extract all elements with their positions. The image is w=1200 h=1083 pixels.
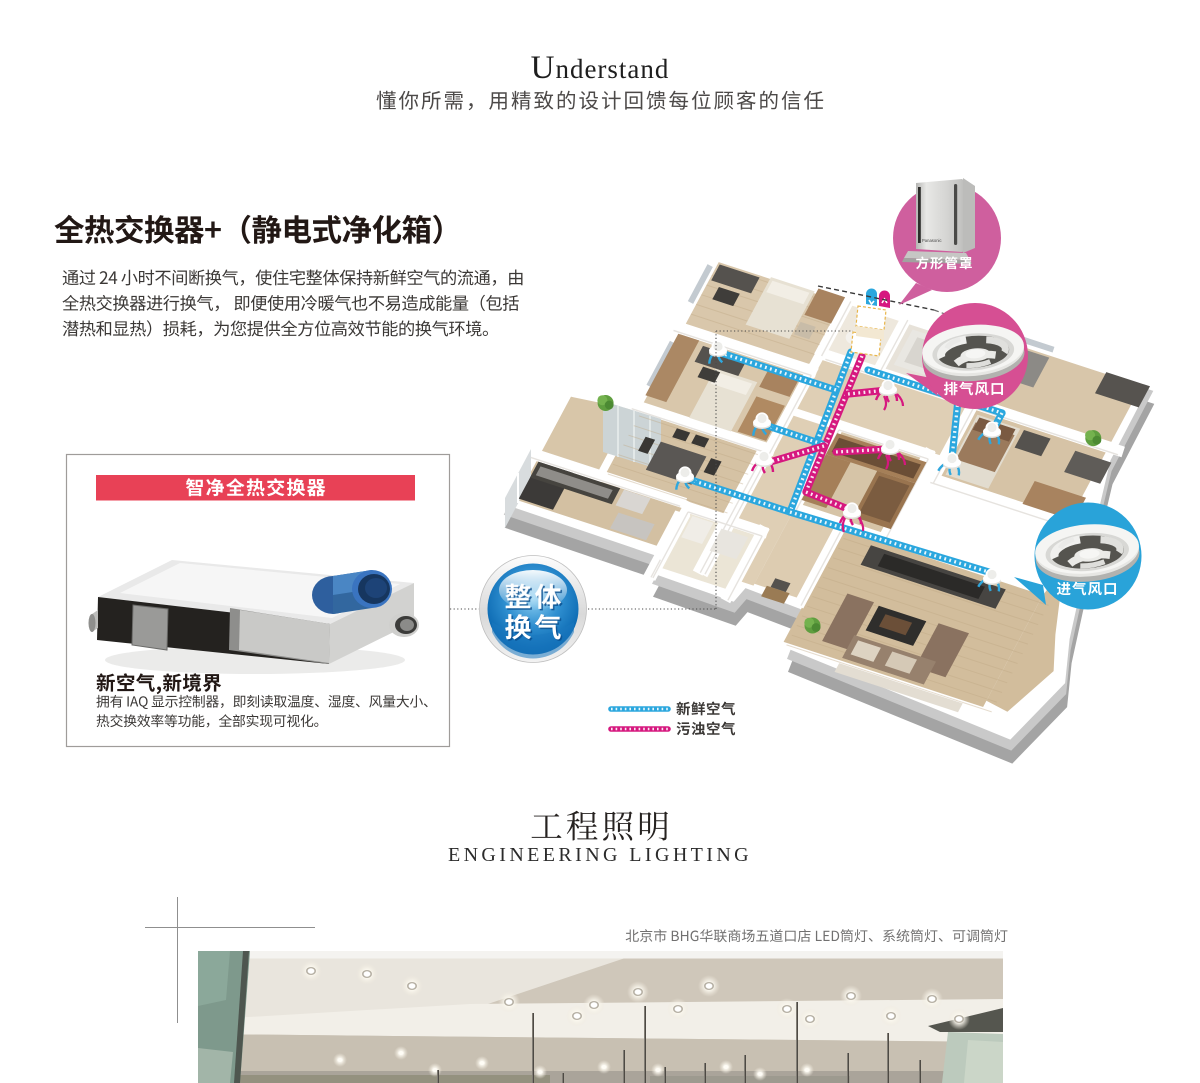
svg-text:Panasonic: Panasonic: [922, 238, 942, 243]
svg-text:Understand: Understand: [531, 50, 670, 86]
svg-text:ENGINEERING LIGHTING: ENGINEERING LIGHTING: [448, 844, 752, 866]
